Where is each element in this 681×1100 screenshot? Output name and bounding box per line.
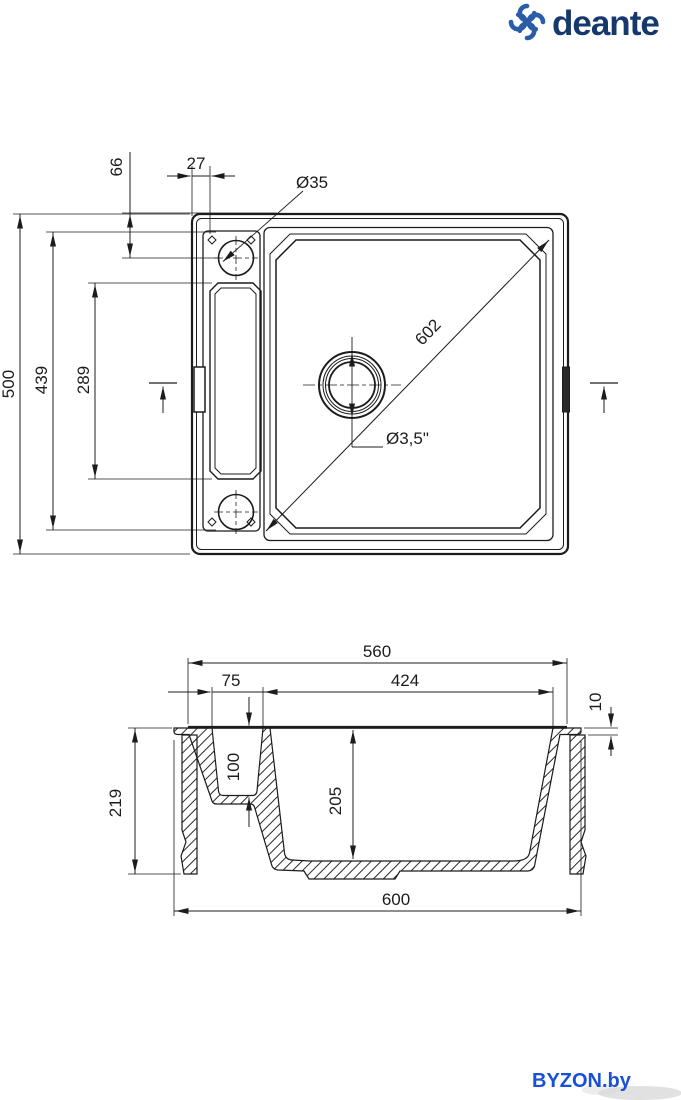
dim-label-100: 100 xyxy=(224,753,243,781)
dim-label-289: 289 xyxy=(74,366,93,394)
tap-hole-top xyxy=(214,236,258,280)
dim-label-75: 75 xyxy=(222,671,241,690)
dim-label-602: 602 xyxy=(411,315,444,349)
logo-text: deante xyxy=(552,4,659,43)
section-marker-right xyxy=(590,383,618,413)
right-edge-slot xyxy=(563,367,570,412)
watermark: BYZON.by xyxy=(532,1070,681,1100)
dim-label-500: 500 xyxy=(0,370,18,398)
dim-label-10: 10 xyxy=(586,693,605,712)
sink-outline-inner xyxy=(197,219,564,550)
drawing-canvas: deante xyxy=(0,0,681,1100)
countertop-left xyxy=(181,735,197,874)
dim-10 xyxy=(584,707,618,756)
tap-panel xyxy=(203,231,260,531)
dim-27 xyxy=(167,166,235,234)
left-edge-slot xyxy=(194,367,205,412)
dim-label-439: 439 xyxy=(32,366,51,394)
dim-label-66: 66 xyxy=(107,158,126,177)
diagonal-dimension xyxy=(266,240,549,531)
section-marker-left xyxy=(149,383,177,413)
countertop-right xyxy=(570,735,586,874)
section-view xyxy=(128,658,618,916)
drain-diameter-dimension xyxy=(352,337,383,447)
pinwheel-icon xyxy=(511,6,543,38)
dim-560 xyxy=(188,658,567,724)
sink-outline-outer xyxy=(192,214,568,554)
dim-label-27: 27 xyxy=(187,154,206,173)
dim-label-tap-diameter: Ø35 xyxy=(296,173,328,192)
tap-hole-bottom xyxy=(214,490,258,534)
dim-219 xyxy=(128,728,181,874)
dim-label-219: 219 xyxy=(106,789,125,817)
tap-hole-leader xyxy=(223,191,303,262)
dim-label-424: 424 xyxy=(391,671,419,690)
watermark-text: BYZON.by xyxy=(532,1070,632,1092)
sink-section-body xyxy=(174,728,581,879)
dim-label-600: 600 xyxy=(382,890,410,909)
top-view xyxy=(13,152,618,554)
technical-drawing-page: deante xyxy=(0,0,681,1100)
deante-logo: deante xyxy=(511,4,659,43)
magnet-recess xyxy=(210,283,261,479)
dim-label-560: 560 xyxy=(363,642,391,661)
dim-label-drain-diameter: Ø3,5" xyxy=(386,429,429,448)
dim-label-205: 205 xyxy=(326,787,345,815)
dim-439 xyxy=(46,232,216,530)
dim-75-424 xyxy=(168,687,553,726)
